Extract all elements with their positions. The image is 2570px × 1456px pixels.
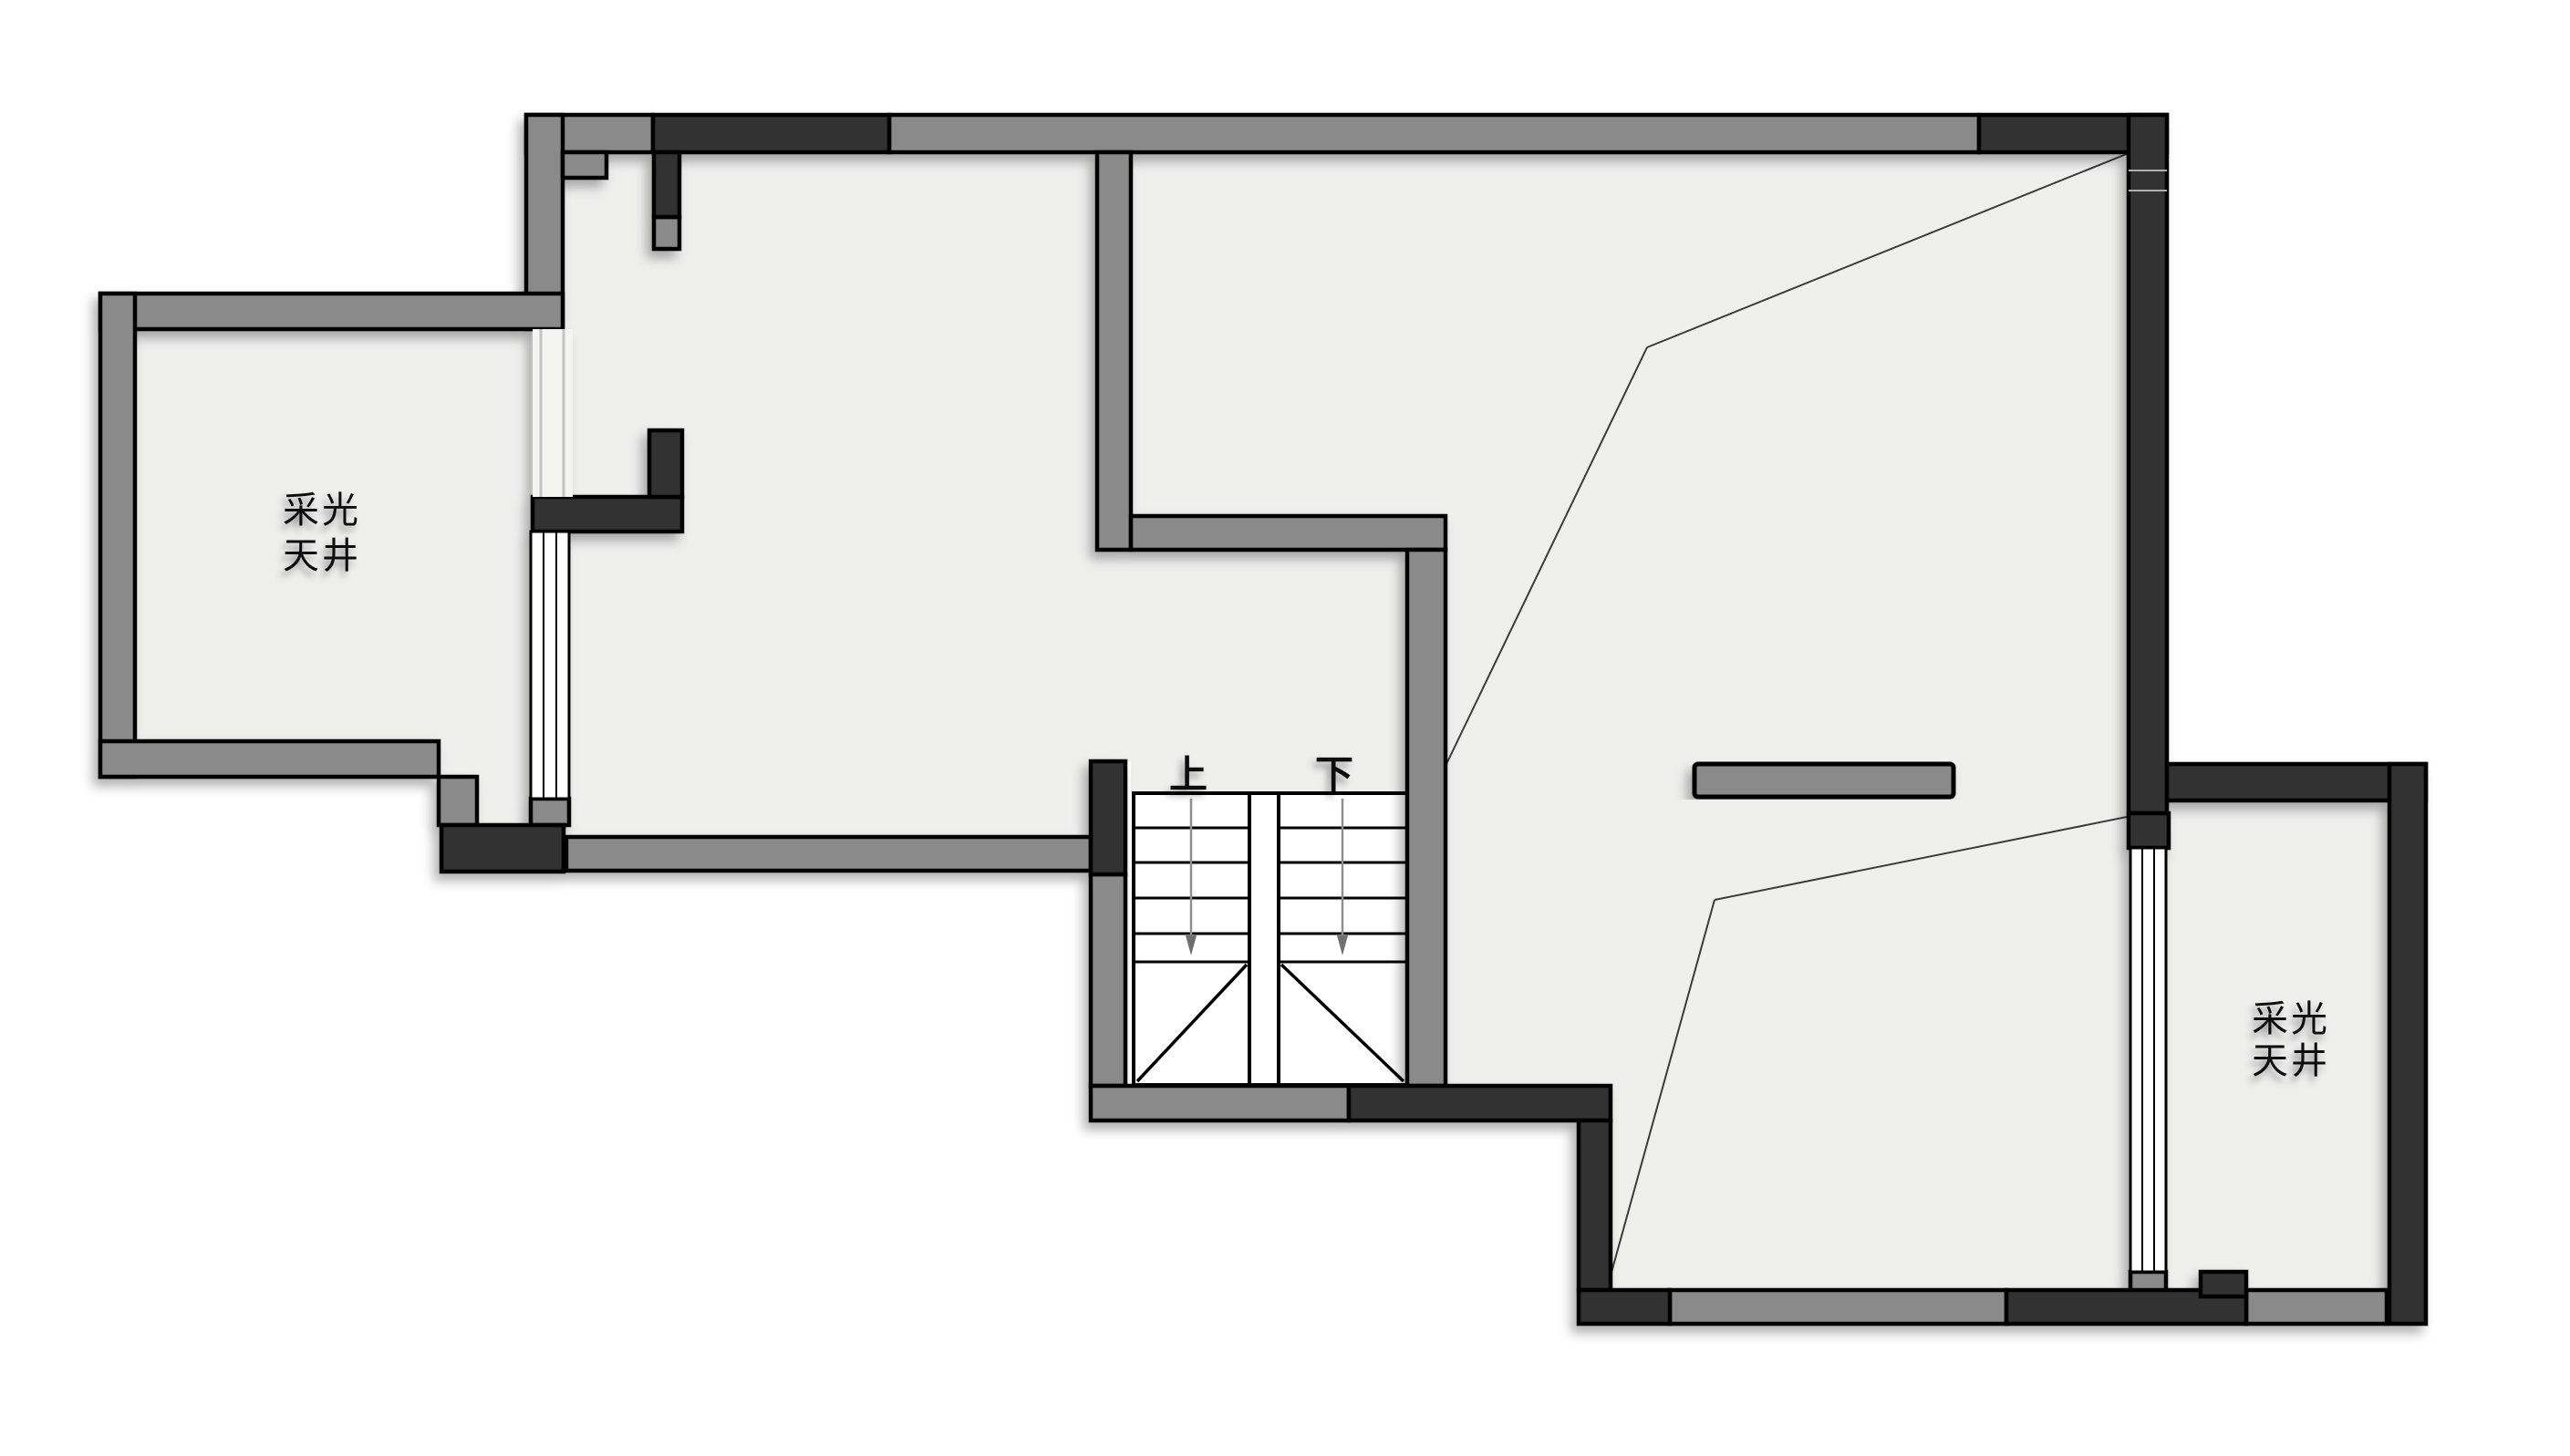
upper-glazing-bg [533,329,573,497]
bottom-wall-dark-segment-left [1579,1290,1670,1324]
bottom-left-block-dark [441,825,564,872]
bottom-long-wall-gray [566,837,1091,871]
right-room-top-wall-dark [2167,764,2426,800]
doorway-floor [1097,550,1131,761]
right-lightwell-window [2130,848,2166,1272]
wall-top-middle-gray [889,115,1979,152]
stair-bottom-wall-gray [1091,1086,1349,1120]
partition-bar-dark [533,497,682,532]
stair-left-wall-gray [1091,874,1125,1086]
bottom-wall-gray-segment [1670,1290,2006,1324]
lower-section-left-wall-dark [1579,1120,1611,1290]
window-frame [531,532,569,799]
right-room-bottom-step-dark [2201,1272,2246,1296]
left-room-left-wall-gray [100,294,135,777]
left-lightwell-label-line1: 采光 [283,490,361,532]
staircase [1134,793,1407,1085]
right-room-corner-block-dark [2129,813,2169,848]
top-stub-tip-gray [654,217,679,249]
floor-plan-svg: 采光 天井 采光 天井 上 下 [0,0,2570,1456]
gray-beam-rect [1694,764,1953,797]
upper-left-room-floor [563,152,1097,837]
right-lightwell-label-line1: 采光 [2252,998,2330,1040]
window-frame [2130,848,2166,1272]
stair-left-block-dark [1091,761,1125,874]
center-vertical-wall-gray [1097,152,1131,550]
left-lightwell-label-line2: 天井 [283,535,361,577]
stair-divider [1249,793,1279,1085]
bottom-wall-gray-segment-right [2246,1290,2387,1324]
left-room-bottom-wall-gray [100,741,439,777]
top-stub-dark [654,152,679,217]
left-lightwell-window [531,532,569,799]
wall-top-dark-segment [653,115,889,152]
upper-glazing-window [533,329,573,497]
right-room-right-wall-dark [2389,764,2426,1324]
stair-up-label: 上 [1169,752,1207,797]
wall-top-step-gray [563,152,606,178]
beam-bar [1694,764,1953,797]
left-room-step-block-gray [439,777,477,825]
stair-hall-top-wall-gray [1131,516,1446,550]
left-window-sill-gray [531,799,569,825]
partition-stub-dark [649,430,682,497]
stair-down-label: 下 [1315,752,1353,797]
left-room-top-wall-gray [100,294,563,329]
right-lightwell-label-line2: 天井 [2252,1040,2330,1082]
stair-right-wall-gray [1407,550,1446,1086]
main-room-right-wall-dark [2129,115,2167,813]
stair-bottom-wall-dark [1349,1086,1611,1120]
